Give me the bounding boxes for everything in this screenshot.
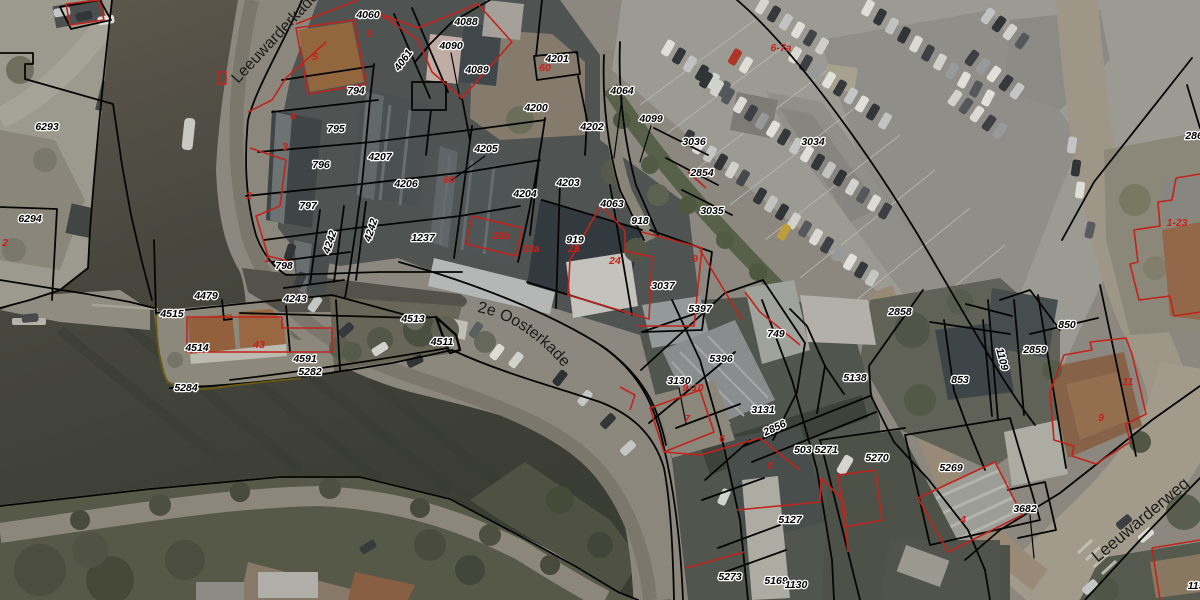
svg-text:797: 797 <box>299 200 318 212</box>
svg-text:1-23: 1-23 <box>1166 217 1187 229</box>
svg-text:798: 798 <box>275 260 293 272</box>
svg-text:4: 4 <box>289 111 296 123</box>
svg-text:5127: 5127 <box>778 514 803 526</box>
svg-text:3037: 3037 <box>651 280 676 292</box>
svg-text:796: 796 <box>312 159 330 171</box>
svg-text:4060: 4060 <box>355 9 380 21</box>
svg-text:3: 3 <box>282 141 288 153</box>
svg-text:4089: 4089 <box>464 64 489 76</box>
svg-text:850: 850 <box>1058 319 1076 331</box>
svg-text:4513: 4513 <box>400 313 425 325</box>
svg-text:794: 794 <box>347 85 365 97</box>
svg-text:9: 9 <box>692 253 698 265</box>
svg-text:749: 749 <box>767 328 785 340</box>
svg-text:1131: 1131 <box>1188 580 1200 592</box>
svg-text:4202: 4202 <box>579 121 604 133</box>
svg-text:43: 43 <box>252 339 265 351</box>
svg-text:5397: 5397 <box>688 303 713 315</box>
svg-text:6: 6 <box>719 433 725 445</box>
svg-text:2860: 2860 <box>1184 130 1200 142</box>
svg-text:1237: 1237 <box>411 232 436 244</box>
svg-text:11: 11 <box>1123 376 1134 388</box>
svg-text:2854: 2854 <box>689 167 714 179</box>
svg-text:5270: 5270 <box>865 452 889 464</box>
svg-text:3682: 3682 <box>1013 503 1037 515</box>
svg-text:3036: 3036 <box>682 136 706 148</box>
svg-text:2: 2 <box>245 190 252 202</box>
svg-text:5284: 5284 <box>174 382 198 394</box>
svg-text:4203: 4203 <box>555 177 580 189</box>
svg-text:4479: 4479 <box>193 290 218 302</box>
svg-text:2859: 2859 <box>1022 344 1047 356</box>
svg-text:1: 1 <box>264 253 270 265</box>
svg-text:5138: 5138 <box>843 372 867 384</box>
svg-text:28a: 28a <box>521 243 540 255</box>
svg-text:60: 60 <box>539 62 551 74</box>
svg-text:24: 24 <box>608 255 621 267</box>
svg-text:5282: 5282 <box>298 366 322 378</box>
svg-text:4204: 4204 <box>512 188 537 200</box>
svg-text:5269: 5269 <box>939 462 963 474</box>
svg-text:795: 795 <box>327 123 345 135</box>
svg-text:4591: 4591 <box>292 353 317 365</box>
svg-text:4207: 4207 <box>367 151 393 163</box>
svg-text:28b: 28b <box>491 230 511 242</box>
svg-text:4514: 4514 <box>184 342 209 354</box>
svg-text:6-7a: 6-7a <box>770 42 791 54</box>
svg-text:9: 9 <box>1098 412 1104 424</box>
svg-text:4205: 4205 <box>473 143 498 155</box>
svg-text:9-10: 9-10 <box>682 382 703 394</box>
svg-text:4243: 4243 <box>282 293 307 305</box>
svg-text:503 5271: 503 5271 <box>794 444 838 456</box>
svg-text:4090: 4090 <box>438 40 463 52</box>
svg-text:5: 5 <box>366 28 372 40</box>
svg-text:3035: 3035 <box>700 205 724 217</box>
svg-text:25: 25 <box>567 243 580 255</box>
svg-text:853: 853 <box>951 374 969 386</box>
svg-text:4206: 4206 <box>393 178 418 190</box>
svg-text:4064: 4064 <box>609 85 634 97</box>
svg-text:5: 5 <box>767 460 773 472</box>
svg-text:5: 5 <box>312 51 318 63</box>
svg-text:60: 60 <box>443 174 455 186</box>
svg-text:5273: 5273 <box>718 571 742 583</box>
svg-text:4: 4 <box>959 514 966 526</box>
svg-text:3034: 3034 <box>801 136 825 148</box>
svg-text:3131: 3131 <box>751 404 775 416</box>
svg-text:918: 918 <box>631 215 649 227</box>
svg-text:4099: 4099 <box>638 113 663 125</box>
svg-text:6293: 6293 <box>35 121 59 133</box>
svg-text:5396: 5396 <box>709 353 733 365</box>
svg-text:4515: 4515 <box>159 308 184 320</box>
svg-text:4200: 4200 <box>523 102 548 114</box>
svg-text:2858: 2858 <box>887 306 912 318</box>
svg-text:4088: 4088 <box>453 16 478 28</box>
svg-text:6294: 6294 <box>18 213 42 225</box>
svg-text:1130: 1130 <box>785 579 808 591</box>
svg-text:2: 2 <box>1 237 8 249</box>
svg-text:4063: 4063 <box>599 198 624 210</box>
svg-text:4511: 4511 <box>430 336 454 348</box>
